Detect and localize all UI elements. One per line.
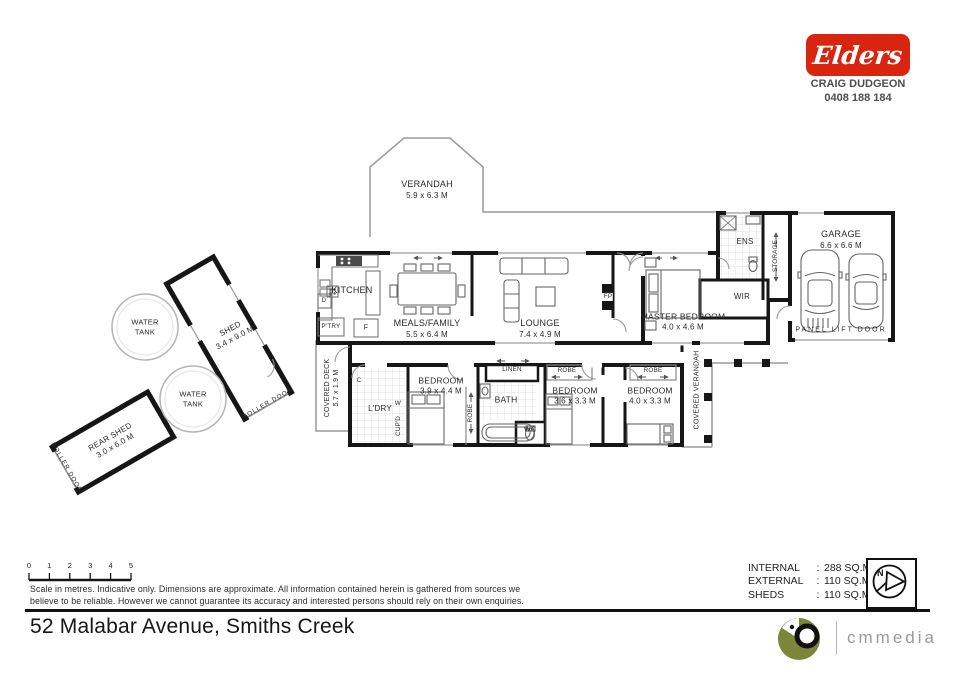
room-label-storage: STORAGE	[772, 240, 780, 272]
label-cupboard: CUP'D	[395, 416, 403, 436]
verandah-posts	[704, 359, 770, 443]
elders-logo-text: Elders	[812, 43, 904, 68]
room-label-bedroom2: BEDROOM3.6 x 3.3 M	[552, 385, 597, 406]
area-label: INTERNAL	[748, 562, 812, 575]
scale-tick: 3	[85, 561, 95, 570]
scale-tick-labels: 0 1 2 3 4 5	[24, 561, 136, 570]
cmmedia-logo: cmmedia	[778, 614, 937, 662]
divider-rule	[25, 609, 930, 612]
property-address: 52 Malabar Avenue, Smiths Creek	[30, 615, 354, 639]
agent-name: CRAIG DUDGEON	[811, 78, 906, 90]
cmmedia-logo-mark	[778, 614, 826, 662]
room-label-laundry: L'DRY	[368, 404, 392, 414]
room-label-master-bedroom: MASTER BEDROOM4.0 x 4.6 M	[641, 311, 726, 332]
floorplan-page: VERANDAH5.9 x 6.3 M KITCHEN P'TRY F D ME…	[0, 0, 955, 675]
room-label-wir: WIR	[734, 292, 750, 302]
north-arrow-icon: N	[866, 558, 917, 609]
room-label-pantry: P'TRY	[322, 323, 341, 331]
north-letter: N	[877, 568, 884, 578]
room-label-meals-family: MEALS/FAMILY5.5 x 6.4 M	[394, 318, 461, 340]
area-row: INTERNAL : 288 SQ.M.	[748, 562, 874, 575]
room-label-wc: WC	[524, 425, 536, 434]
scale-tick: 1	[44, 561, 54, 570]
room-label-covered-verandah: COVERED VERANDAH	[692, 351, 701, 430]
scale-tick: 2	[65, 561, 75, 570]
room-label-lounge: LOUNGE7.4 x 4.9 M	[519, 318, 561, 340]
room-label-dishwasher: D	[322, 297, 327, 305]
disclaimer-line-1: Scale in metres. Indicative only. Dimens…	[30, 584, 520, 594]
area-label: SHEDS	[748, 589, 812, 602]
room-label-kitchen: KITCHEN	[332, 285, 373, 297]
cmmedia-text: cmmedia	[847, 628, 937, 648]
scale-tick: 4	[106, 561, 116, 570]
label-cupboard-c: C	[357, 377, 362, 385]
label-water-tank-2: WATER TANK	[172, 389, 214, 409]
label-panel-lift-door: PANEL LIFT DOOR	[795, 325, 886, 334]
scale-tick: 0	[24, 561, 34, 570]
area-colon: :	[812, 589, 824, 602]
room-label-bedroom3: BEDROOM4.0 x 3.3 M	[627, 385, 672, 406]
area-colon: :	[812, 562, 824, 575]
area-colon: :	[812, 575, 824, 588]
label-robe1: ROBE	[467, 404, 475, 423]
area-row: SHEDS : 110 SQ.M.	[748, 589, 874, 602]
room-label-garage: GARAGE6.6 x 6.6 M	[820, 229, 862, 251]
label-washer: W	[395, 400, 401, 408]
elders-logo: Elders	[806, 34, 910, 76]
room-label-fridge: F	[364, 323, 368, 332]
disclaimer-line-2: believe to be reliable. However we canno…	[30, 596, 524, 606]
room-label-ensuite: ENS	[736, 237, 753, 247]
room-label-fireplace: FP	[603, 293, 613, 301]
scale-tick: 5	[126, 561, 136, 570]
room-label-covered-deck: COVERED DECK5.7 x 1.9 M	[323, 359, 341, 417]
north-arrow-glyph: N	[868, 560, 911, 603]
agent-phone: 0408 188 184	[824, 92, 891, 104]
room-label-linen: LINEN	[502, 366, 522, 374]
room-label-verandah: VERANDAH5.9 x 6.3 M	[401, 179, 453, 201]
label-water-tank-1: WATER TANK	[124, 317, 166, 337]
area-label: EXTERNAL	[748, 575, 812, 588]
label-robe3: ROBE	[644, 367, 663, 375]
scale-bar	[29, 573, 131, 580]
label-robe2: ROBE	[558, 367, 577, 375]
room-label-bedroom1: BEDROOM3.9 x 4.4 M	[418, 375, 463, 396]
cmmedia-divider	[836, 621, 837, 655]
area-summary: INTERNAL : 288 SQ.M. EXTERNAL : 110 SQ.M…	[748, 562, 874, 602]
room-label-bath: BATH	[495, 394, 518, 405]
area-row: EXTERNAL : 110 SQ.M.	[748, 575, 874, 588]
